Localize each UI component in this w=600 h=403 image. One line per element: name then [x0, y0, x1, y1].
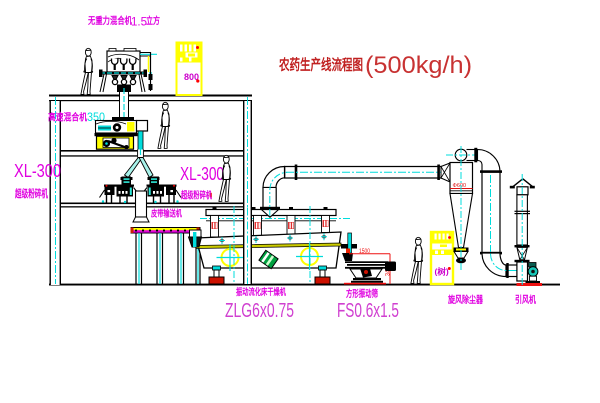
svg-text:1.5: 1.5	[131, 17, 147, 29]
svg-text:方形振动筛: 方形振动筛	[346, 288, 378, 300]
svg-text:旋风除尘器: 旋风除尘器	[447, 294, 483, 306]
svg-text:XL-300: XL-300	[14, 161, 61, 181]
svg-text:皮带输送机: 皮带输送机	[150, 208, 182, 219]
svg-text:(树): (树)	[435, 267, 449, 277]
svg-text:(500kg/h): (500kg/h)	[365, 52, 472, 79]
svg-text:引风机: 引风机	[515, 294, 536, 306]
svg-text:超级粉碎机: 超级粉碎机	[180, 190, 212, 202]
svg-text:立方: 立方	[146, 15, 160, 27]
svg-text:1500: 1500	[359, 249, 371, 255]
svg-text:XL-300: XL-300	[180, 164, 224, 184]
svg-text:农药生产线流程图: 农药生产线流程图	[278, 56, 363, 74]
svg-text:无重力混合机: 无重力混合机	[87, 15, 132, 27]
svg-text:超级粉碎机: 超级粉碎机	[14, 187, 48, 200]
svg-text:高速混合机: 高速混合机	[48, 112, 87, 124]
svg-text:振动流化床干燥机: 振动流化床干燥机	[236, 286, 286, 297]
svg-text:FS0.6x1.5: FS0.6x1.5	[337, 300, 399, 322]
svg-text:ZLG6x0.75: ZLG6x0.75	[225, 300, 294, 322]
